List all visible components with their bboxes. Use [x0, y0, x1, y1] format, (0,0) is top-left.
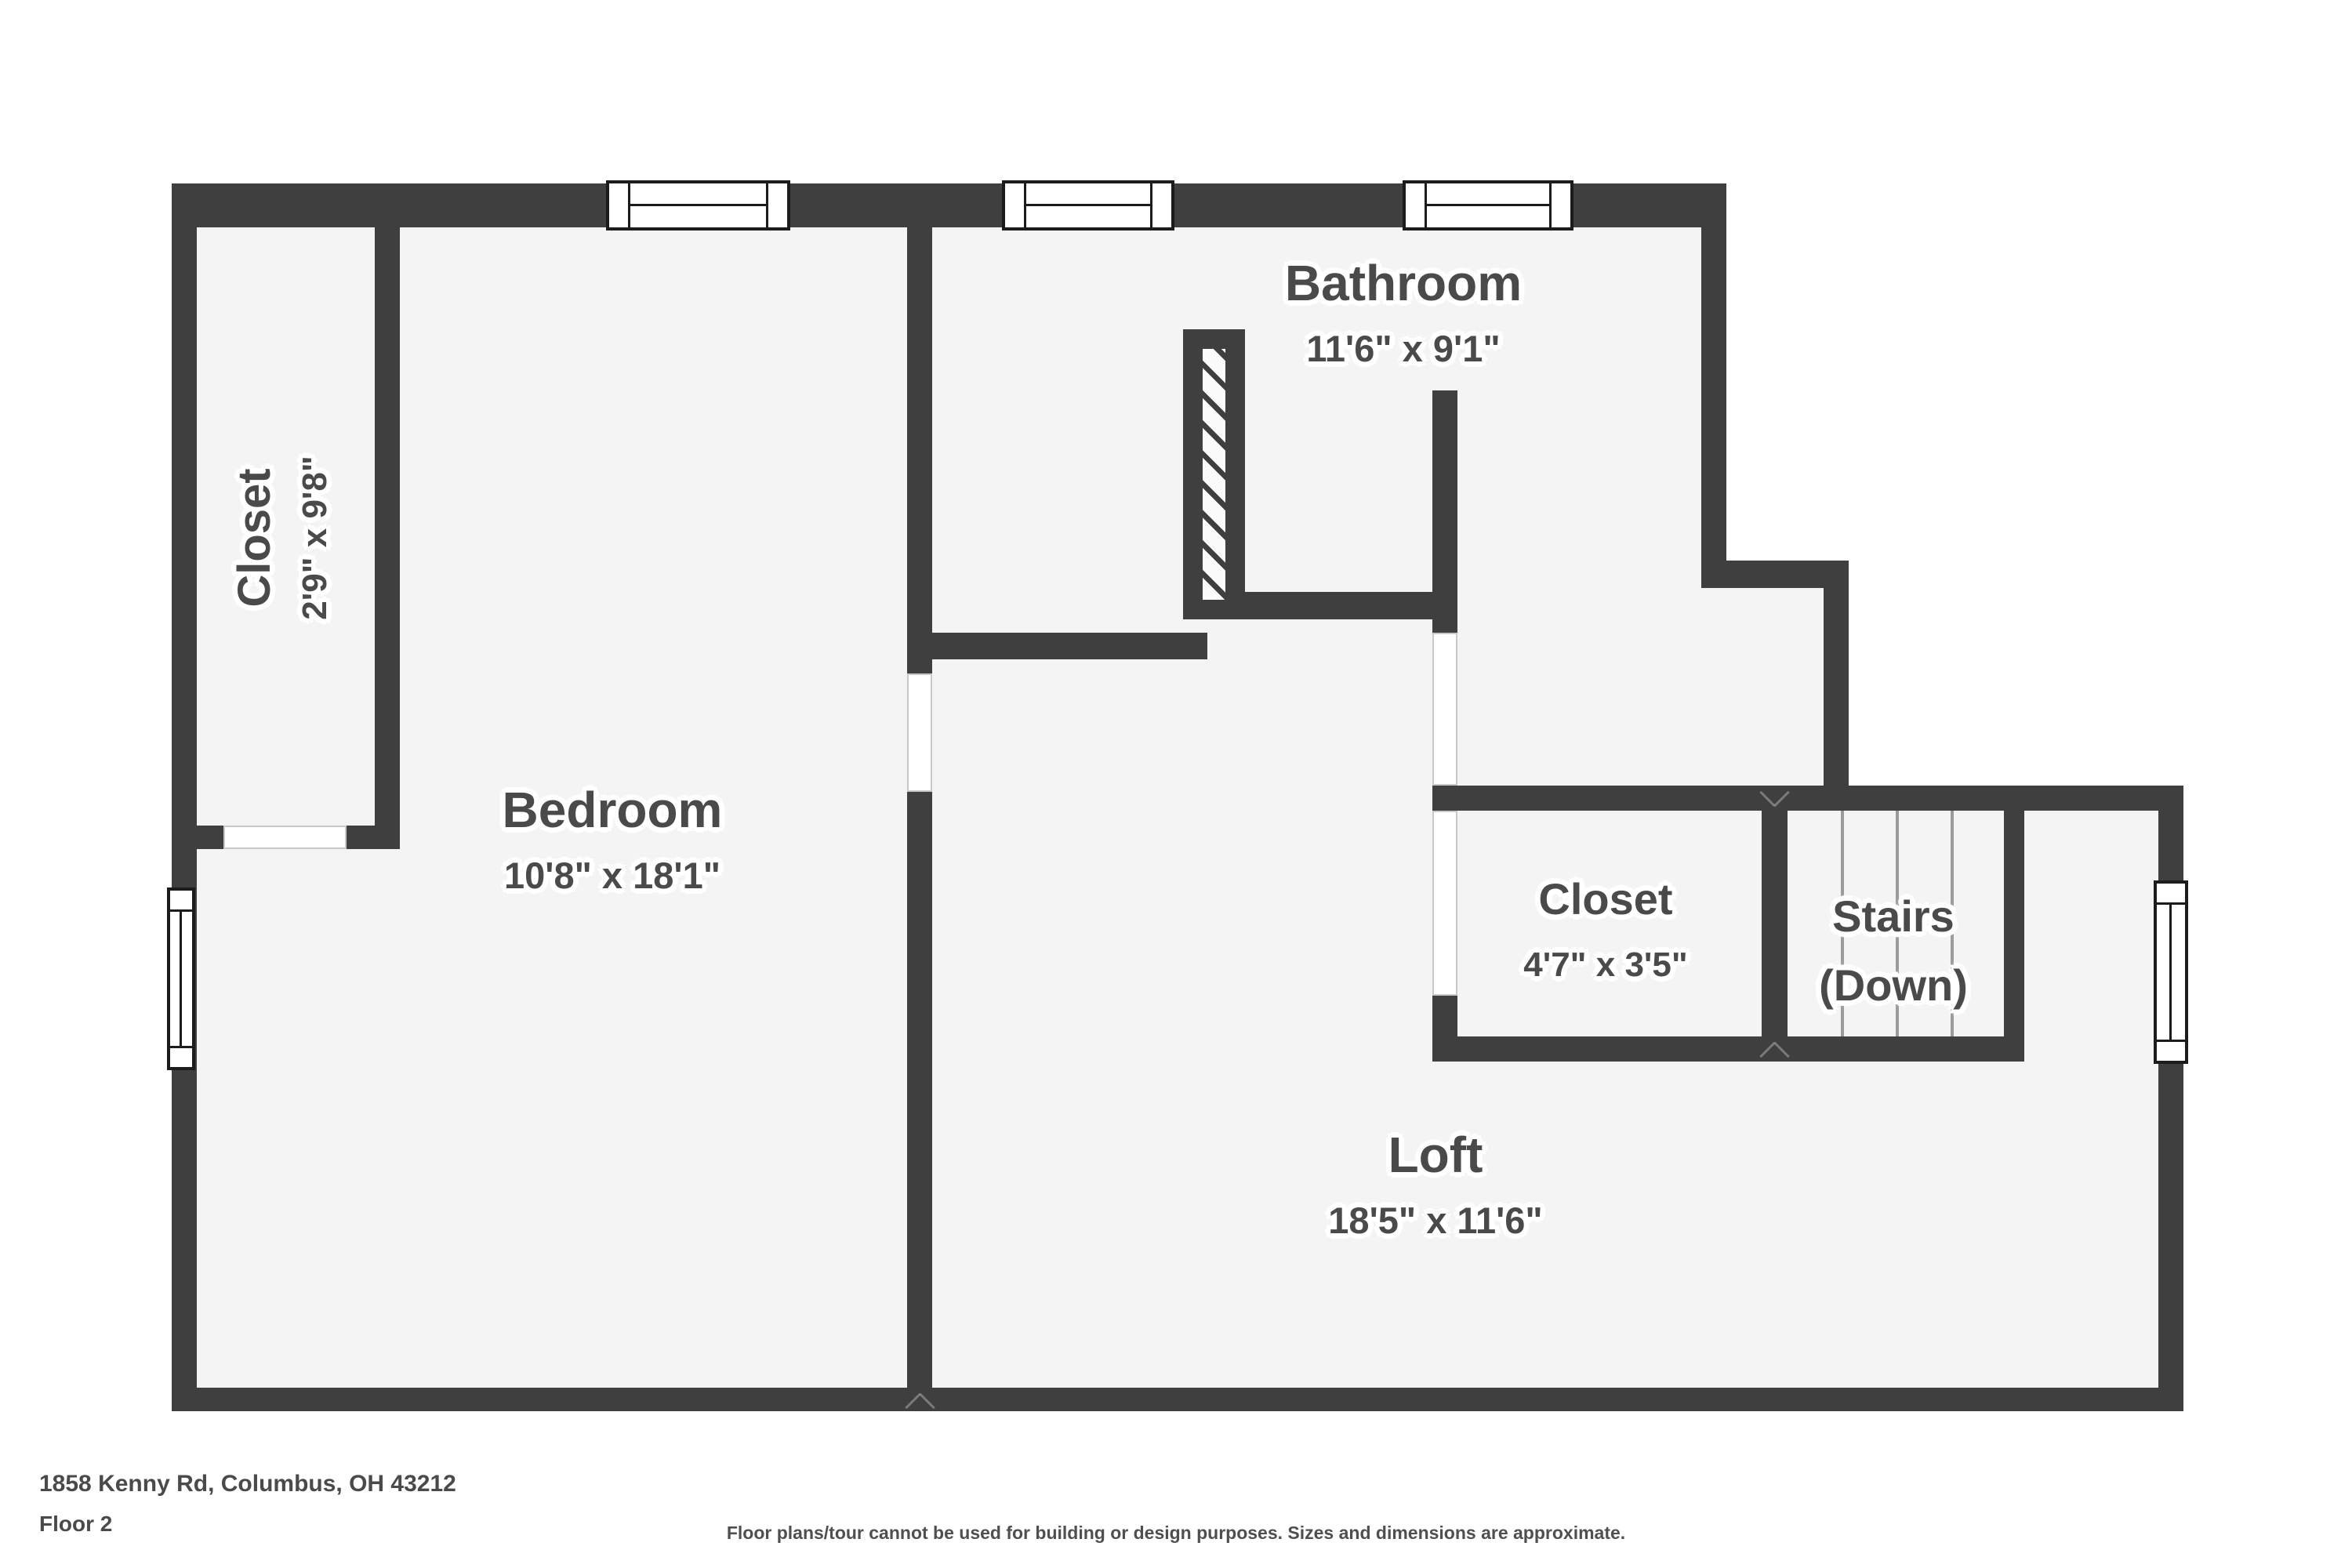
- bedroom-partition-wall-upper: [907, 183, 932, 673]
- stairs-direction: (Down): [1819, 960, 1968, 1011]
- exterior-wall-left: [172, 183, 197, 1411]
- window-symbol-left-wall: [167, 887, 195, 1070]
- left-closet-right-wall: [375, 183, 400, 849]
- room-label-stairs: Stairs (Down): [1819, 891, 1968, 1011]
- bathroom-south-wall-right: [1245, 592, 1432, 619]
- bedroom-partition-wall-lower: [907, 792, 932, 1411]
- window-symbol-bathroom-top-left: [1002, 180, 1174, 230]
- window-symbol-right-wall: [2154, 880, 2188, 1064]
- left-closet-bottom-wall-stub-right: [347, 826, 400, 849]
- closet-stairs-divider-wall: [1762, 811, 1788, 1036]
- door-opening-right-closet: [1432, 811, 1457, 996]
- hatch-pattern: [1203, 349, 1225, 600]
- door-opening-left-closet: [223, 826, 347, 849]
- room-name: Loft: [1328, 1125, 1542, 1185]
- hall-closet-west-wall-upper: [1432, 390, 1457, 633]
- door-opening-bedroom: [907, 673, 932, 792]
- room-label-bathroom: Bathroom 11'6" x 9'1": [1285, 253, 1522, 371]
- left-closet-bottom-wall-stub-left: [197, 826, 223, 849]
- address-text: 1858 Kenny Rd, Columbus, OH 43212: [39, 1471, 456, 1497]
- room-name: Bedroom: [503, 780, 723, 840]
- room-dimensions: 2'9" x 9'8": [294, 456, 336, 619]
- room-label-closet-right: Closet 4'7" x 3'5": [1523, 873, 1687, 986]
- room-dimensions: 4'7" x 3'5": [1523, 944, 1687, 986]
- floorplan: Bathroom 11'6" x 9'1" Closet 2'9" x 9'8"…: [0, 0, 2352, 1568]
- room-name: Closet: [1523, 873, 1687, 925]
- room-dimensions: 11'6" x 9'1": [1285, 327, 1522, 371]
- disclaimer-text: Floor plans/tour cannot be used for buil…: [0, 1523, 2352, 1544]
- notch-wall-vertical: [1824, 561, 1849, 811]
- right-exterior-wall: [2158, 786, 2183, 1411]
- exterior-wall-bottom: [172, 1388, 2183, 1411]
- shower-hatched-wall: [1183, 329, 1245, 619]
- room-name: Stairs: [1819, 891, 1968, 942]
- closet-stairs-bottom-wall: [1432, 1036, 2024, 1062]
- door-opening-hall: [1432, 633, 1457, 786]
- room-label-closet-left: Closet 2'9" x 9'8": [228, 456, 336, 619]
- bathroom-south-wall-left: [932, 633, 1207, 659]
- room-name: Bathroom: [1285, 253, 1522, 313]
- room-label-bedroom: Bedroom 10'8" x 18'1": [503, 780, 723, 898]
- room-label-loft: Loft 18'5" x 11'6": [1328, 1125, 1542, 1243]
- window-symbol-bedroom-top: [606, 180, 790, 230]
- closet-stairs-top-wall: [1432, 786, 2183, 811]
- room-name: Closet: [228, 456, 281, 619]
- room-dimensions: 18'5" x 11'6": [1328, 1199, 1542, 1243]
- room-dimensions: 10'8" x 18'1": [503, 854, 723, 898]
- window-symbol-bathroom-top-right: [1403, 180, 1573, 230]
- stairs-right-wall: [2004, 811, 2024, 1036]
- bathroom-right-exterior-wall: [1701, 183, 1726, 588]
